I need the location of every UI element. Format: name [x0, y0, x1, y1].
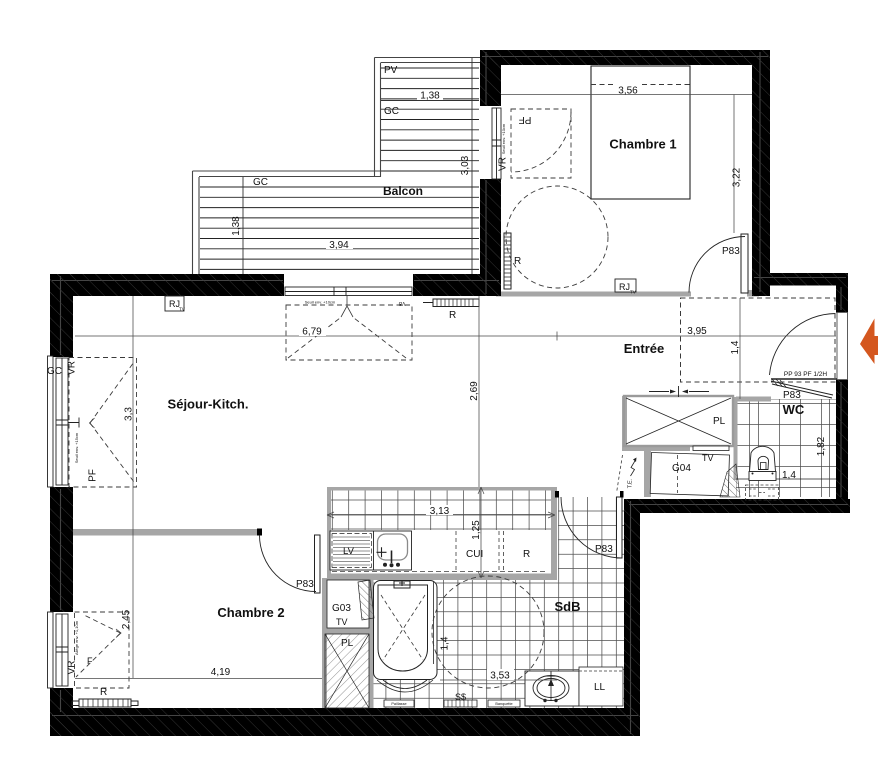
- svg-text:R: R: [100, 687, 107, 698]
- svg-text:1,38: 1,38: [231, 216, 242, 236]
- svg-text:Entrée: Entrée: [624, 341, 664, 356]
- svg-text:WC: WC: [783, 402, 805, 417]
- svg-text:Seuil env. +10cm: Seuil env. +10cm: [501, 123, 506, 154]
- svg-text:VR: VR: [67, 361, 78, 375]
- svg-text:LV: LV: [343, 546, 355, 557]
- svg-text:GC: GC: [384, 106, 399, 117]
- svg-text:Séjour-Kitch.: Séjour-Kitch.: [168, 397, 249, 412]
- svg-text:T.E.: T.E.: [628, 478, 634, 488]
- svg-text:3,22: 3,22: [732, 167, 743, 187]
- svg-text:VB: VB: [398, 300, 405, 306]
- svg-text:TV: TV: [702, 453, 714, 463]
- svg-text:CUI: CUI: [466, 549, 483, 560]
- svg-text:TV: TV: [630, 290, 636, 295]
- svg-text:R: R: [523, 549, 530, 560]
- svg-text:1,82: 1,82: [816, 436, 827, 456]
- svg-text:Chambre 2: Chambre 2: [217, 605, 284, 620]
- svg-text:VR: VR: [67, 661, 78, 675]
- svg-text:1,4: 1,4: [440, 636, 451, 650]
- svg-text:P83: P83: [783, 390, 801, 401]
- svg-text:3,94: 3,94: [329, 240, 349, 251]
- svg-text:Seuil env. +15cm: Seuil env. +15cm: [74, 432, 79, 463]
- svg-text:Balcon: Balcon: [383, 184, 423, 198]
- svg-text:PV: PV: [384, 65, 398, 76]
- svg-text:PL: PL: [341, 638, 354, 649]
- svg-text:P83: P83: [595, 544, 613, 555]
- svg-text:Paillasse: Paillasse: [391, 702, 406, 706]
- svg-text:TV: TV: [336, 617, 348, 627]
- svg-text:4,19: 4,19: [211, 667, 231, 678]
- svg-text:Banquette: Banquette: [495, 702, 512, 706]
- svg-text:VR: VR: [498, 157, 509, 171]
- svg-text:3,03: 3,03: [460, 155, 471, 175]
- svg-text:PF: PF: [519, 114, 532, 125]
- svg-text:PP 93 PF 1/2H: PP 93 PF 1/2H: [784, 371, 828, 378]
- svg-text:R: R: [449, 310, 456, 321]
- svg-text:RJ: RJ: [619, 282, 630, 292]
- svg-text:LL: LL: [594, 682, 606, 693]
- svg-text:GC: GC: [253, 177, 268, 188]
- svg-text:3,3: 3,3: [124, 407, 135, 421]
- svg-text:G03: G03: [332, 603, 351, 614]
- svg-text:3,53: 3,53: [490, 671, 510, 682]
- svg-text:PF: PF: [88, 469, 99, 482]
- svg-text:3,13: 3,13: [430, 506, 450, 517]
- svg-text:S$: S$: [455, 692, 466, 702]
- svg-text:3,56: 3,56: [618, 86, 638, 97]
- svg-text:Chambre 1: Chambre 1: [609, 137, 676, 152]
- svg-text:1,4: 1,4: [782, 470, 796, 481]
- svg-text:PL: PL: [713, 416, 726, 427]
- svg-text:R: R: [514, 256, 521, 267]
- svg-text:Seuil env. +10cm: Seuil env. +10cm: [305, 300, 336, 305]
- svg-text:3,95: 3,95: [687, 326, 707, 337]
- svg-text:1,4: 1,4: [730, 340, 741, 354]
- svg-text:1,25: 1,25: [471, 520, 482, 540]
- svg-text:SdB: SdB: [555, 599, 581, 614]
- svg-text:6,79: 6,79: [302, 327, 322, 338]
- svg-text:TV: TV: [179, 307, 185, 312]
- svg-text:P83: P83: [722, 246, 740, 257]
- svg-text:2,45: 2,45: [121, 609, 132, 629]
- svg-text:P83: P83: [296, 579, 314, 590]
- svg-text:2,69: 2,69: [469, 381, 480, 401]
- svg-text:GC: GC: [47, 366, 62, 377]
- svg-text:Allège env. +1,10m: Allège env. +1,10m: [74, 620, 79, 655]
- svg-text:F: F: [87, 656, 93, 666]
- svg-text:G04: G04: [672, 463, 691, 474]
- svg-text:1,38: 1,38: [420, 91, 440, 102]
